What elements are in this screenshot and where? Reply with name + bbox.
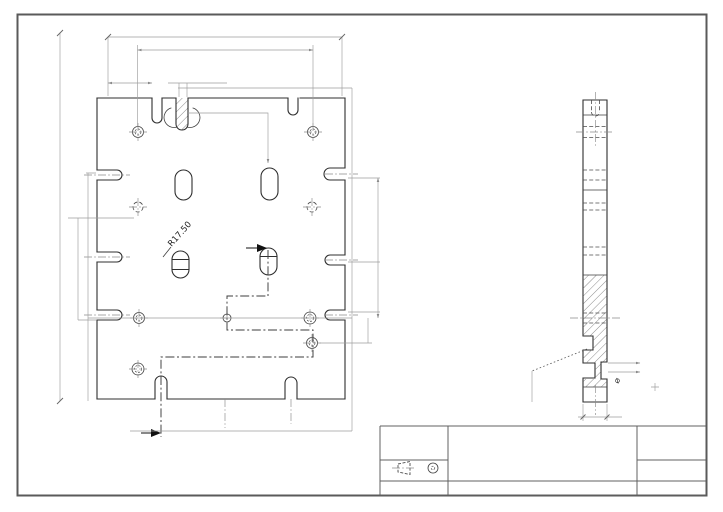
title-block-grid bbox=[380, 426, 706, 496]
cad-drawing: R17.50 bbox=[0, 0, 723, 512]
title-block bbox=[380, 426, 706, 496]
section-cut-line bbox=[161, 250, 313, 437]
right-edge-notches bbox=[324, 168, 345, 320]
section-arrow-bottom bbox=[141, 429, 161, 437]
left-edge-notches bbox=[97, 170, 122, 320]
diameter-label: ⌀ bbox=[612, 376, 623, 385]
dimension-lines bbox=[57, 30, 380, 431]
leader-line bbox=[532, 349, 587, 402]
section-arrow-top bbox=[246, 244, 267, 252]
hole bbox=[129, 198, 147, 216]
stray-point-marker bbox=[651, 383, 659, 391]
drawing-sheet: R17.50 bbox=[0, 0, 723, 512]
hatched-slot bbox=[176, 98, 188, 130]
side-view-bottom-dimension bbox=[578, 404, 622, 421]
plate-outline bbox=[97, 98, 345, 399]
side-view: ⌀ bbox=[532, 92, 640, 421]
radius-label: R17.50 bbox=[166, 220, 194, 249]
top-edge-slots bbox=[152, 98, 298, 130]
projection-symbol bbox=[392, 462, 438, 475]
hole bbox=[129, 360, 147, 378]
frustum-end-view-icon bbox=[428, 463, 438, 473]
bottom-edge-slots bbox=[155, 376, 297, 399]
notch-dimension-leaders bbox=[608, 363, 640, 372]
hole bbox=[129, 123, 147, 141]
front-view: R17.50 bbox=[84, 98, 358, 437]
notch-centerlines bbox=[84, 174, 358, 315]
hole bbox=[303, 334, 321, 352]
side-view-hatching bbox=[583, 275, 607, 387]
hole bbox=[303, 198, 321, 216]
